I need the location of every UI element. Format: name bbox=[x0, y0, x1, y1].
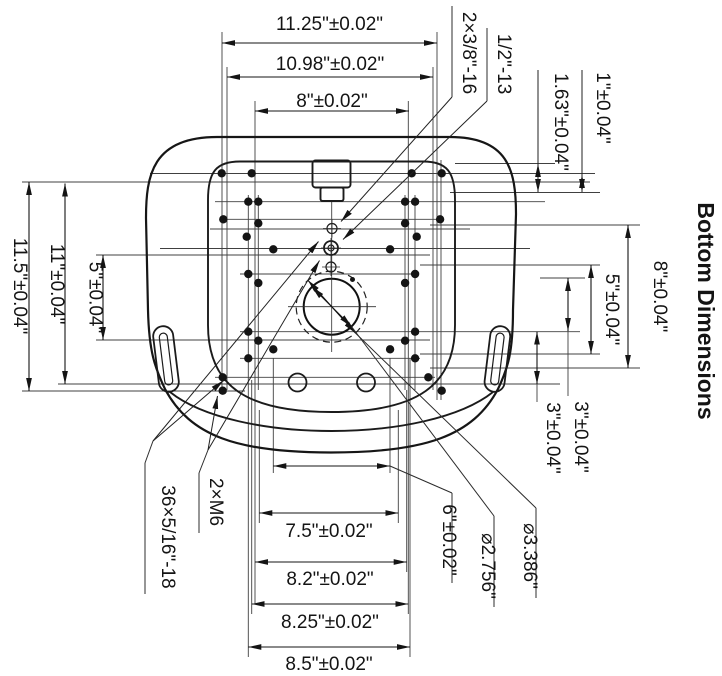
seat-outer-outline bbox=[146, 137, 516, 453]
bolt-circle-hole bbox=[350, 277, 355, 282]
dim-bottom-2: 8.2"±0.02" bbox=[286, 569, 373, 590]
dim-right-163: 1.63"±0.04" bbox=[550, 73, 571, 171]
dim-left-1: 11.5"±0.04" bbox=[9, 238, 30, 334]
mounting-hole bbox=[438, 169, 446, 177]
right-slot bbox=[483, 325, 511, 393]
mounting-hole bbox=[269, 345, 277, 353]
mounting-hole bbox=[401, 279, 409, 287]
callout-thread-1-2: 1/2"-13 bbox=[493, 34, 514, 95]
page-title: Bottom Dimensions bbox=[693, 202, 719, 419]
mounting-hole bbox=[254, 337, 262, 345]
mounting-hole bbox=[411, 354, 419, 362]
seat-body bbox=[146, 137, 516, 453]
dim-bottom-1: 7.5"±0.02" bbox=[285, 521, 372, 542]
leader-line bbox=[145, 441, 153, 463]
mounting-hole bbox=[411, 270, 419, 278]
mounting-hole bbox=[243, 233, 251, 241]
dim-top-1: 11.25"±0.02" bbox=[276, 14, 383, 35]
mounting-hole bbox=[244, 328, 252, 336]
mounting-hole bbox=[254, 198, 262, 206]
mounting-hole bbox=[244, 198, 252, 206]
callout-6in: 6"±0.02" bbox=[438, 504, 459, 575]
mounting-hole bbox=[219, 215, 227, 223]
mounting-hole bbox=[424, 373, 432, 381]
thread-hole-bottom bbox=[322, 258, 340, 276]
technical-drawing-page: 11.25"±0.02" 10.98"±0.02" 8"±0.02" 7.5"±… bbox=[0, 0, 722, 676]
top-tab-outer bbox=[313, 161, 351, 188]
dim-left-3: 5"±0.04" bbox=[85, 262, 106, 333]
leader-line bbox=[390, 466, 452, 493]
mounting-hole bbox=[386, 345, 394, 353]
construction-lines bbox=[22, 32, 640, 657]
leader-arrow bbox=[153, 242, 319, 442]
dim-bottom-3: 8.25"±0.02" bbox=[281, 612, 379, 633]
mounting-hole bbox=[254, 279, 262, 287]
bottom-hole-left bbox=[289, 374, 307, 392]
mounting-hole bbox=[438, 387, 446, 395]
top-tab-inner bbox=[321, 188, 344, 202]
leader-line bbox=[199, 450, 208, 473]
mounting-hole bbox=[401, 198, 409, 206]
dim-right-5: 5"±0.04" bbox=[601, 274, 622, 345]
callout-36-studs: 36×5/16"-18 bbox=[157, 485, 178, 588]
callout-dia-3386: ⌀3.386" bbox=[519, 523, 540, 589]
mounting-hole bbox=[244, 270, 252, 278]
mounting-hole bbox=[401, 337, 409, 345]
mounting-hole bbox=[401, 219, 409, 227]
mounting-hole bbox=[386, 245, 394, 253]
mounting-hole bbox=[254, 219, 262, 227]
callout-2xm6: 2×M6 bbox=[205, 478, 226, 526]
dim-top-2: 10.98"±0.02" bbox=[276, 54, 384, 75]
mounting-hole bbox=[436, 215, 444, 223]
mounting-hole bbox=[218, 169, 226, 177]
leader-arrow bbox=[341, 97, 452, 222]
mounting-hole bbox=[411, 198, 419, 206]
dim-top-3: 8"±0.02" bbox=[296, 91, 367, 112]
mounting-hole bbox=[244, 354, 252, 362]
mounting-hole bbox=[411, 328, 419, 336]
mounting-hole bbox=[219, 387, 227, 395]
dim-right-8: 8"±0.04" bbox=[649, 261, 670, 332]
mounting-hole bbox=[413, 233, 421, 241]
thread-hole-top bbox=[323, 220, 341, 238]
dim-right-1in: 1"±0.04" bbox=[592, 72, 613, 143]
mounting-hole bbox=[219, 373, 227, 381]
dim-bottom-4: 8.5"±0.02" bbox=[285, 654, 372, 675]
dim-left-2: 11"±0.04" bbox=[46, 244, 67, 325]
mounting-hole bbox=[269, 245, 277, 253]
dim-right-3a: 3"±0.04" bbox=[570, 401, 591, 472]
bottom-hole-right bbox=[357, 374, 375, 392]
mounting-hole bbox=[248, 169, 256, 177]
callout-dia-2756: ⌀2.756" bbox=[477, 533, 498, 599]
bottom-dimensions-diagram: 11.25"±0.02" 10.98"±0.02" 8"±0.02" 7.5"±… bbox=[0, 0, 722, 676]
callout-stud-3-8: 2×3/8"-16 bbox=[458, 12, 479, 94]
left-slot bbox=[152, 325, 180, 393]
dim-right-3b: 3"±0.04" bbox=[542, 402, 563, 473]
